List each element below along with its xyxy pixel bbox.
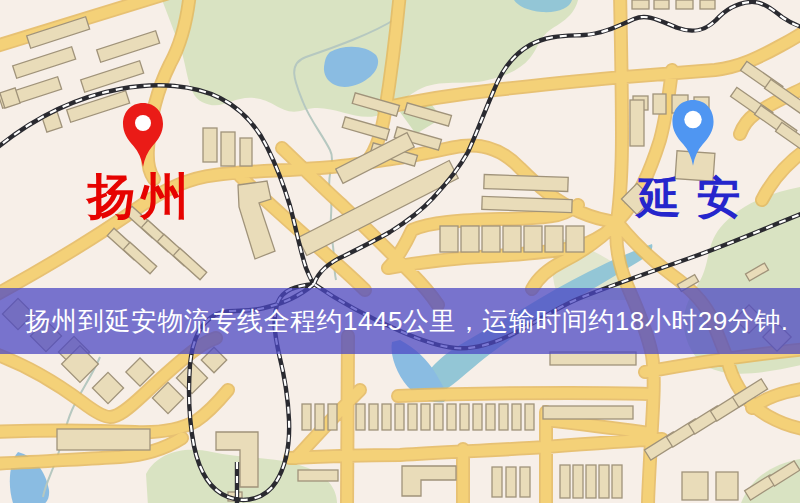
route-info-banner: 扬州到延安物流专线全程约1445公里，运输时间约18小时29分钟. [0,288,800,354]
origin-city-label: 扬州 [87,172,193,221]
route-info-text: 扬州到延安物流专线全程约1445公里，运输时间约18小时29分钟. [0,304,788,339]
red-map-pin-icon[interactable] [121,101,165,173]
map-canvas[interactable]: 扬州 延安 扬州到延安物流专线全程约1445公里，运输时间约18小时29分钟. [0,0,800,503]
map-background [0,0,800,503]
destination-city-label: 延安 [637,177,757,221]
blue-map-pin-icon[interactable] [667,98,719,172]
